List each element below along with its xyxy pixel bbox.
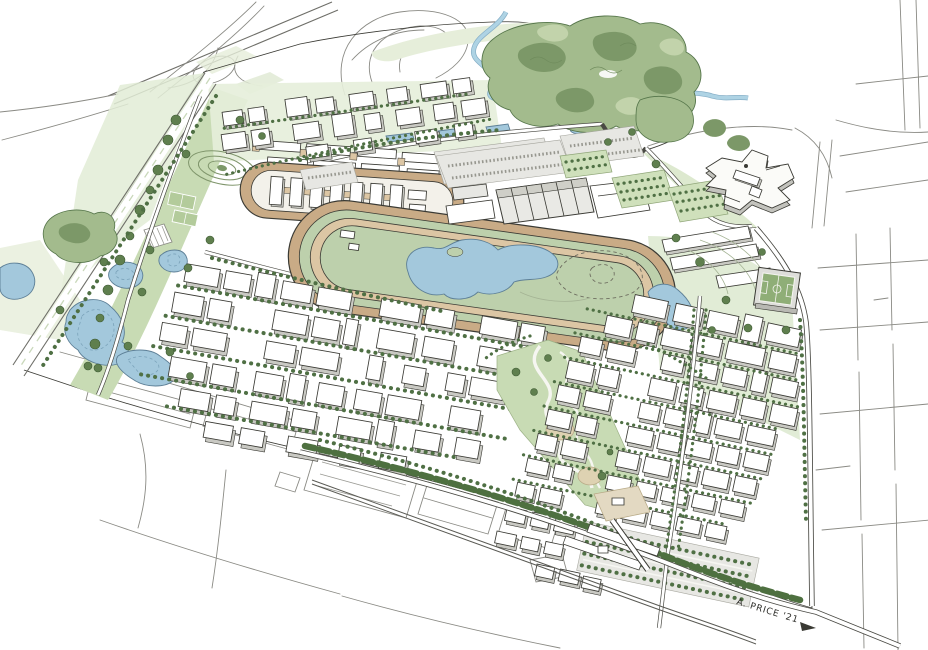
masterplan-illustration: A. PRICE '21 — [0, 0, 928, 650]
east-sketch-grid — [816, 228, 928, 650]
aerial-sketch-canvas: A. PRICE '21 — [0, 0, 928, 650]
pond-4 — [116, 350, 176, 386]
pond-far-west — [0, 263, 35, 299]
pond-1 — [159, 250, 187, 272]
interchange-green-patch — [196, 46, 256, 74]
signature-doodle — [800, 622, 816, 631]
soccer-field — [753, 267, 802, 314]
